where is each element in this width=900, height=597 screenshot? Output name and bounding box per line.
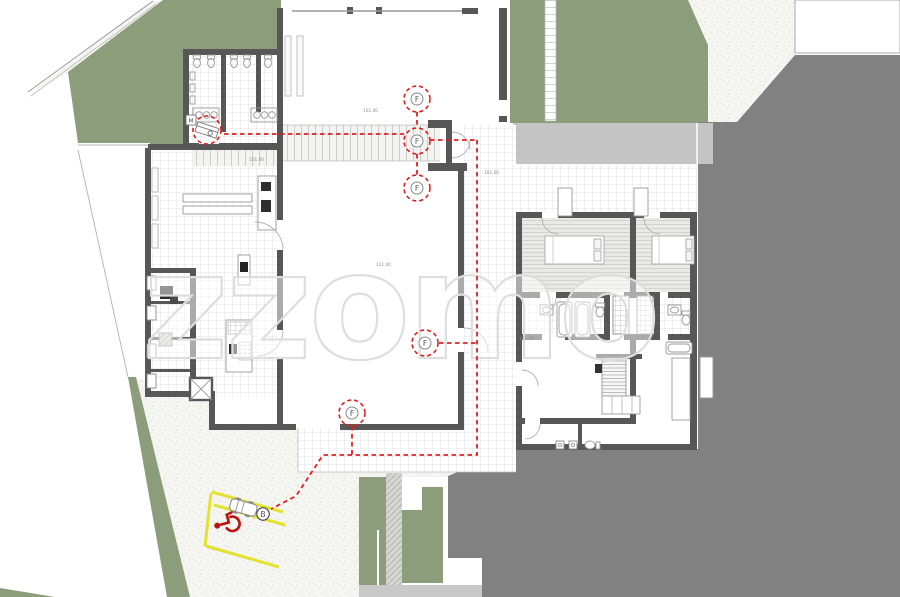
site-floor-plan: zzomo B M — [0, 0, 900, 597]
elevation-label: 101.00 — [484, 170, 499, 176]
green-sliver-corner — [0, 588, 55, 597]
meter-marker-label: M — [189, 119, 194, 125]
hall-benches — [285, 36, 303, 96]
floor-plan-drawing: zzomo B M — [0, 0, 900, 597]
parking-marker: B — [257, 508, 269, 520]
wall — [221, 55, 226, 132]
green-area-topright — [510, 0, 708, 123]
wall — [209, 424, 283, 430]
f-marker: F — [404, 86, 430, 112]
wall — [516, 418, 525, 424]
f-marker: F — [404, 175, 430, 201]
f-marker: F — [339, 400, 365, 426]
wall — [340, 424, 464, 430]
elevation-label: 101.00 — [363, 108, 378, 114]
wall — [446, 126, 452, 164]
wall — [499, 8, 507, 100]
wall — [516, 444, 697, 450]
upper-terrace-white — [795, 0, 900, 53]
south-terrace-tiles — [298, 428, 516, 472]
boundary-line-3 — [78, 150, 128, 377]
green-bed-b — [402, 487, 443, 583]
green-bed-a — [359, 477, 386, 592]
f-marker-label: F — [423, 339, 427, 348]
meter-marker: M — [186, 115, 196, 125]
lightwell — [672, 358, 690, 420]
f-marker-label: F — [415, 137, 419, 146]
wall — [148, 144, 283, 150]
elevation-label: 101.00 — [249, 157, 264, 163]
wall — [578, 424, 582, 450]
f-marker-label: F — [415, 184, 419, 193]
hatched-walkway — [386, 473, 402, 592]
skylight — [700, 357, 713, 398]
gray-path-band — [513, 123, 713, 164]
wall — [428, 163, 467, 171]
upper-terrace-tiles — [513, 164, 697, 212]
kitchen-steps — [193, 150, 282, 166]
f-marker-label: F — [350, 409, 354, 418]
wall — [540, 418, 630, 424]
wall — [183, 49, 189, 150]
wall — [668, 334, 697, 340]
wall — [499, 116, 507, 122]
roof-mass-right — [698, 55, 900, 597]
parking-marker-label: B — [260, 510, 265, 519]
f-marker-label: F — [415, 95, 419, 104]
elevation-label: 101.00 — [376, 262, 391, 268]
wall — [256, 55, 261, 112]
elevation-label: 101.00 — [519, 336, 534, 342]
wall — [462, 8, 478, 14]
garden-path — [545, 0, 556, 121]
wall — [183, 49, 280, 55]
watermark-text: zzomo — [143, 221, 658, 393]
gray-curb-bottom — [359, 585, 482, 597]
wall — [668, 292, 690, 298]
wall — [277, 8, 283, 220]
